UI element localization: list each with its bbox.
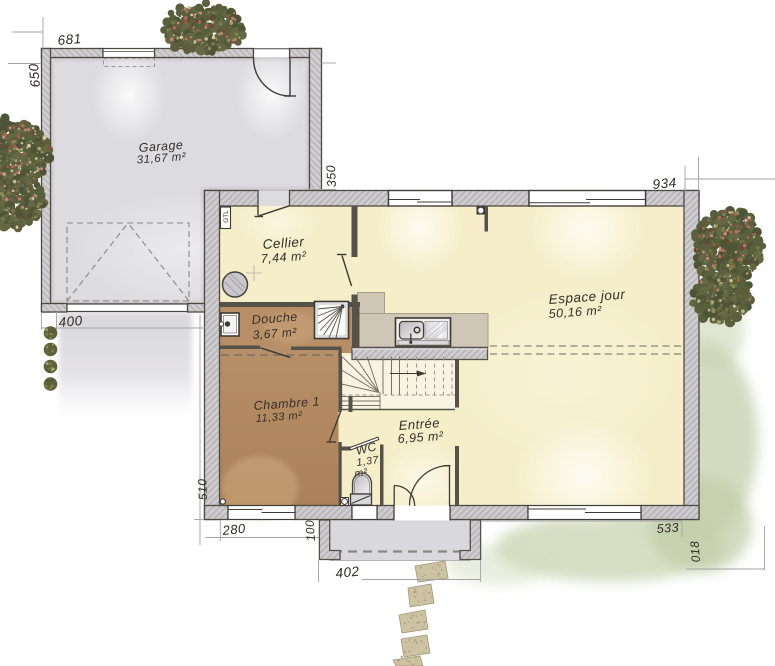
svg-text:350: 350 — [324, 165, 339, 188]
svg-text:400: 400 — [58, 313, 83, 330]
svg-text:GTL: GTL — [223, 210, 230, 223]
svg-text:533: 533 — [656, 520, 679, 536]
svg-text:280: 280 — [221, 521, 247, 538]
svg-text:m²: m² — [354, 466, 369, 480]
svg-text:650: 650 — [26, 63, 43, 88]
svg-text:100: 100 — [303, 519, 318, 541]
svg-text:934: 934 — [652, 175, 677, 192]
svg-text:402: 402 — [335, 564, 360, 581]
svg-text:018: 018 — [688, 540, 703, 562]
svg-text:681: 681 — [57, 31, 82, 48]
svg-text:510: 510 — [195, 478, 210, 500]
